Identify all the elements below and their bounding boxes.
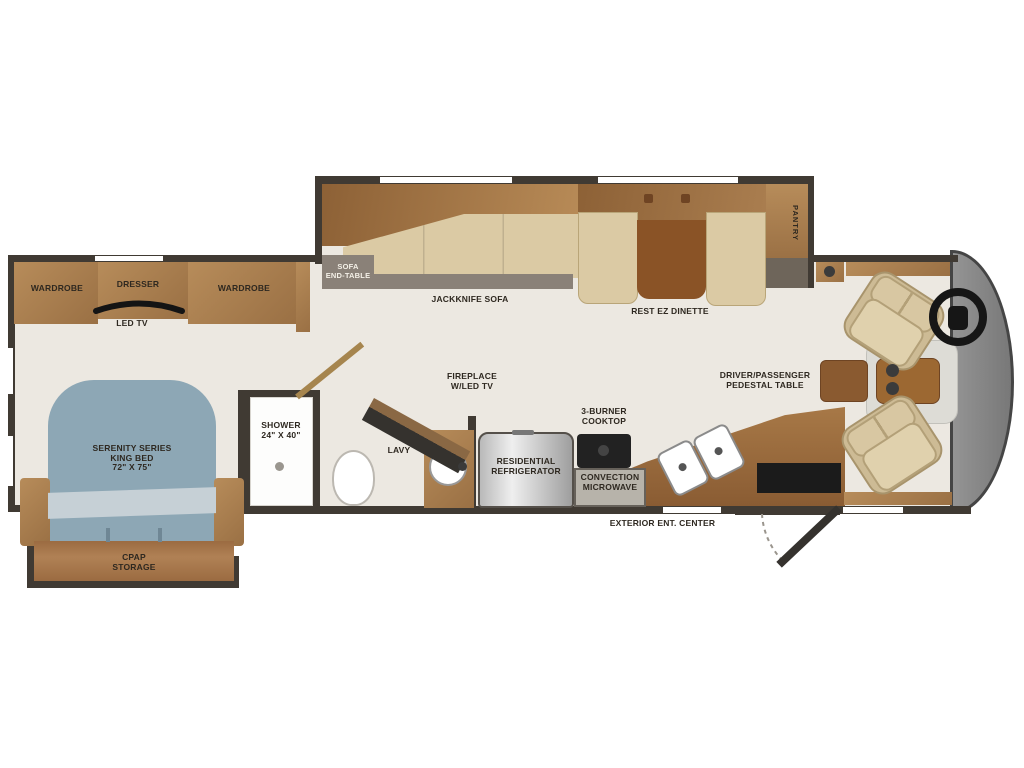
shower-drain — [275, 462, 284, 471]
bed-foot-notch-right — [158, 528, 162, 542]
fireplace-label: FIREPLACE W/LED TV — [432, 372, 512, 391]
sink-drain — [677, 462, 688, 473]
dinette-bench-left — [578, 212, 638, 304]
nightstand-right — [214, 478, 244, 546]
wall-cab-top — [813, 255, 958, 262]
pedestal-table-label: DRIVER/PASSENGER PEDESTAL TABLE — [705, 371, 825, 390]
wall-shower-left — [243, 390, 250, 508]
refrigerator-handle — [512, 430, 534, 435]
led-tv-label: LED TV — [102, 319, 162, 329]
wardrobe-step — [296, 262, 310, 332]
entry-door-panel — [782, 511, 836, 562]
window-bedroom-left-2 — [8, 436, 13, 486]
window-bottom-2 — [843, 507, 903, 513]
console-cupholder-2 — [886, 382, 899, 395]
bed-foot-notch-left — [106, 528, 110, 542]
wall-shower-right — [313, 390, 320, 508]
wall-bedslide-bottom — [27, 581, 239, 588]
cab-cabinet-knob — [824, 266, 835, 277]
dinette-table — [637, 220, 706, 299]
sofa-end-table-label: SOFA END-TABLE — [320, 263, 376, 280]
lavy-label: LAVY — [376, 446, 422, 456]
console-cupholder-1 — [886, 364, 899, 377]
sink-drain — [713, 446, 724, 457]
dinette-mount-left — [644, 194, 653, 203]
dinette-label: REST EZ DINETTE — [600, 307, 740, 317]
wall-connector-top — [306, 255, 318, 262]
lavy-faucet — [458, 462, 467, 471]
window-sofaslide-2 — [598, 177, 738, 183]
shower-label: SHOWER 24" X 40" — [246, 421, 316, 440]
exterior-ent-center-box — [757, 463, 841, 493]
bed-label: SERENITY SERIES KING BED 72" X 75" — [72, 444, 192, 473]
dresser — [98, 262, 188, 319]
sofa-front-ledge — [348, 274, 573, 289]
dinette-mount-right — [681, 194, 690, 203]
cpap-label: CPAP STORAGE — [84, 553, 184, 572]
pedestal-table — [820, 360, 868, 402]
window-sofaslide-1 — [380, 177, 512, 183]
microwave-label: CONVECTION MICROWAVE — [576, 473, 644, 492]
cooktop-burner — [598, 445, 609, 456]
shower-pan — [250, 397, 313, 506]
jackknife-sofa-label: JACKKNIFE SOFA — [400, 295, 540, 305]
wardrobe-left-label: WARDROBE — [16, 284, 98, 294]
dinette-bench-right — [706, 212, 766, 306]
rv-floor-plan: WARDROBE DRESSER WARDROBE LED TV SERENIT… — [0, 0, 1024, 768]
pantry-base — [766, 258, 808, 288]
dash-bottom — [844, 492, 952, 505]
wall-sofaslide-left — [315, 176, 322, 264]
dresser-label: DRESSER — [95, 280, 181, 290]
dash-top — [846, 262, 950, 276]
toilet — [332, 450, 375, 506]
entry-door-swing-arc — [762, 514, 783, 561]
nightstand-left — [20, 478, 50, 546]
window-bedroom-top — [95, 256, 163, 261]
steering-hub — [948, 306, 968, 330]
refrigerator-label: RESIDENTIAL REFRIGERATOR — [480, 457, 572, 476]
window-bottom-1 — [663, 507, 721, 513]
cooktop-label: 3-BURNER COOKTOP — [566, 407, 642, 426]
wardrobe-right-label: WARDROBE — [190, 284, 298, 294]
exterior-ent-center-label: EXTERIOR ENT. CENTER — [605, 519, 720, 529]
window-bedroom-left-1 — [8, 348, 13, 394]
pantry-label: PANTRY — [776, 192, 800, 254]
